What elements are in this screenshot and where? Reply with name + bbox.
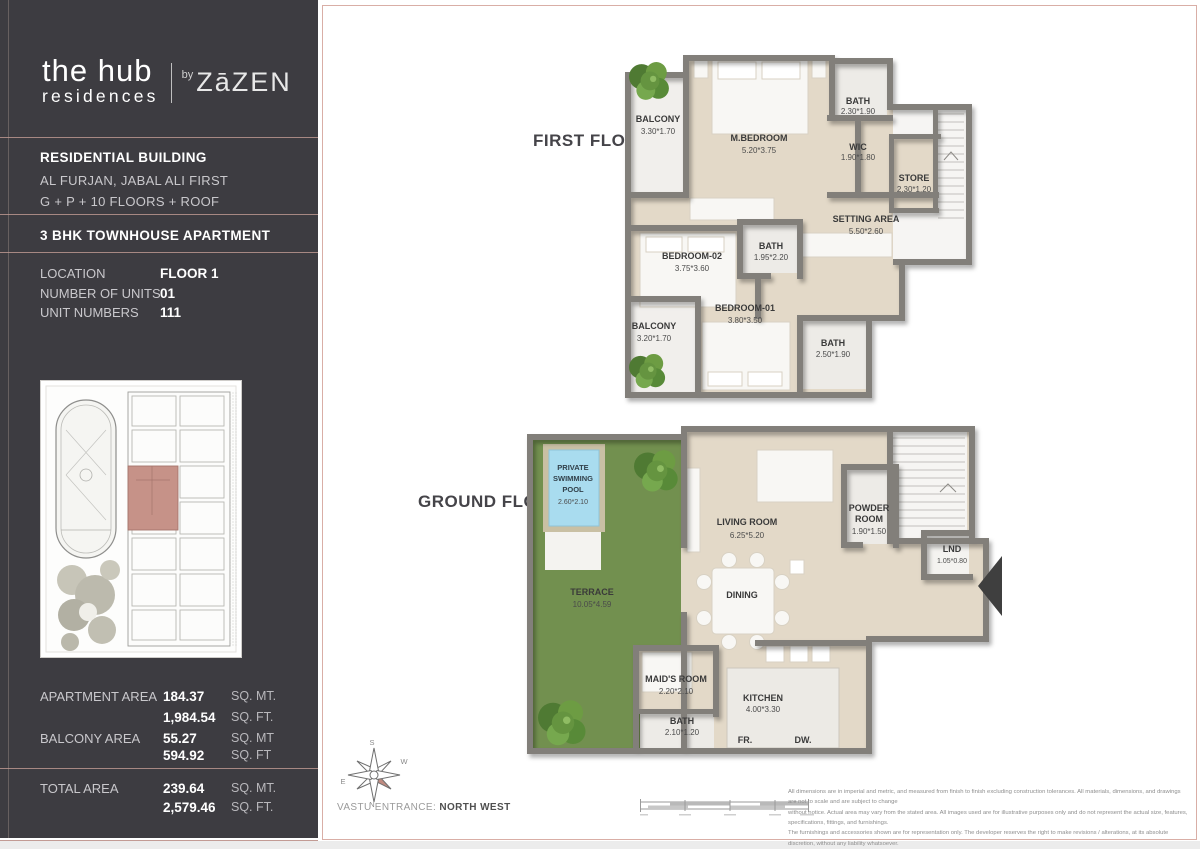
room-dims: 5.20*3.75 xyxy=(742,146,777,155)
room-label-lnd: LND xyxy=(943,544,962,554)
room-dims: 10.05*4.59 xyxy=(573,600,612,609)
building-location: AL FURJAN, JABAL ALI FIRST xyxy=(40,173,228,188)
room-dims: 1.95*2.20 xyxy=(754,253,789,262)
room-label-pool: POOL xyxy=(562,485,584,494)
room-label-pool: PRIVATE xyxy=(557,463,588,472)
detail-label: NUMBER OF UNITS xyxy=(40,286,161,301)
label-fridge: FR. xyxy=(738,735,753,745)
keyplan-courtyard xyxy=(56,400,116,558)
room-label-powder-room: ROOM xyxy=(855,514,883,524)
room-dims: 3.80*3.50 xyxy=(728,316,763,325)
divider xyxy=(0,214,318,215)
compass-rose-icon: S W E N xyxy=(338,736,410,808)
area-unit: SQ. MT. xyxy=(231,689,276,703)
room-label-balcony-bottom: BALCONY xyxy=(632,321,677,331)
room-dims: 6.25*5.20 xyxy=(730,531,765,540)
total-unit: SQ. MT. xyxy=(231,781,276,795)
disclaimer-line: All dimensions are in imperial and metri… xyxy=(788,787,1190,808)
area-unit: SQ. FT xyxy=(231,748,271,762)
room-dims: 2.20*2.10 xyxy=(659,687,694,696)
disclaimer-text: All dimensions are in imperial and metri… xyxy=(788,787,1190,849)
room-label-wic: WIC xyxy=(849,142,867,152)
detail-row: LOCATIONFLOOR 1 xyxy=(40,266,106,281)
area-value: 1,984.54 xyxy=(163,710,216,725)
room-label-kitchen: KITCHEN xyxy=(743,693,783,703)
room-dims: 2.30*1.90 xyxy=(841,107,876,116)
room-label-bedroom-02: BEDROOM-02 xyxy=(662,251,722,261)
room-label-bedroom-01: BEDROOM-01 xyxy=(715,303,775,313)
room-dims: 2.30*1.20 xyxy=(897,185,932,194)
label-dishwasher: DW. xyxy=(795,735,812,745)
total-value: 239.64 xyxy=(163,781,204,796)
compass-w: W xyxy=(400,757,408,766)
vastu-entrance: VASTU ENTRANCE: NORTH WEST xyxy=(337,802,511,813)
detail-row: NUMBER OF UNITS01 xyxy=(40,286,161,301)
room-dims: 4.00*3.30 xyxy=(746,705,781,714)
first-floor-plan: BALCONY 3.30*1.70 M.BEDROOM 5.20*3.75 BA… xyxy=(525,40,1005,410)
area-label: APARTMENT AREA xyxy=(40,689,157,704)
sidebar: the hub residences by ZāZEN RESIDENTIAL … xyxy=(0,0,318,838)
room-dims: 3.30*1.70 xyxy=(641,127,676,136)
detail-label: UNIT NUMBERS xyxy=(40,305,139,320)
room-label-living-room: LIVING ROOM xyxy=(717,517,778,527)
total-label: TOTAL AREA xyxy=(40,781,119,796)
developer-logo: ZāZEN xyxy=(196,67,292,98)
room-label-dining: DINING xyxy=(726,590,758,600)
area-label: BALCONY AREA xyxy=(40,731,140,746)
room-label-terrace: TERRACE xyxy=(570,587,614,597)
area-value: 184.37 xyxy=(163,689,204,704)
brand-by: by xyxy=(182,69,194,81)
building-floors: G + P + 10 FLOORS + ROOF xyxy=(40,194,219,209)
room-dims: 1.90*1.80 xyxy=(841,153,876,162)
sidebar-inset-line xyxy=(8,0,9,838)
room-dims: 2.10*1.20 xyxy=(665,728,700,737)
brand-name-bottom: residences xyxy=(42,86,159,107)
detail-row: UNIT NUMBERS111 xyxy=(40,305,139,320)
room-label-bath: BATH xyxy=(670,716,694,726)
room-dims: 5.50*2.60 xyxy=(849,227,884,236)
divider xyxy=(0,137,318,138)
total-row: TOTAL AREA239.64SQ. MT. xyxy=(40,781,290,796)
vastu-label: VASTU ENTRANCE: xyxy=(337,802,436,813)
disclaimer-line: The furnishings and accessories shown ar… xyxy=(788,828,1190,849)
room-label-setting-area: SETTING AREA xyxy=(833,214,900,224)
room-dims: 3.75*3.60 xyxy=(675,264,710,273)
detail-value: 01 xyxy=(160,286,175,301)
room-dims: 1.90*1.50 xyxy=(852,527,887,536)
room-dims: 1.05*0.80 xyxy=(937,558,967,565)
brand-name-top: the hub xyxy=(42,58,159,84)
key-plan-thumbnail xyxy=(40,380,242,658)
room-label-bath-top: BATH xyxy=(846,96,870,106)
area-unit: SQ. MT xyxy=(231,731,274,745)
divider xyxy=(0,252,318,253)
area-row: APARTMENT AREA184.37SQ. MT. xyxy=(40,689,290,704)
room-dims: 2.50*1.90 xyxy=(816,350,851,359)
total-unit: SQ. FT. xyxy=(231,800,273,814)
room-label-bath-mid: BATH xyxy=(759,241,783,251)
building-title: RESIDENTIAL BUILDING xyxy=(40,150,207,165)
room-label-store: STORE xyxy=(899,173,930,183)
vastu-value: NORTH WEST xyxy=(439,802,510,813)
room-label-powder-room: POWDER xyxy=(849,503,890,513)
keyplan-hatch xyxy=(230,392,238,646)
compass-s: S xyxy=(369,738,374,747)
room-dims: 2.60*2.10 xyxy=(558,499,588,506)
unit-type: 3 BHK TOWNHOUSE APARTMENT xyxy=(40,228,270,243)
ground-floor-plan: PRIVATE SWIMMING POOL 2.60*2.10 TERRACE … xyxy=(515,418,1015,763)
compass-e: E xyxy=(340,777,345,786)
detail-label: LOCATION xyxy=(40,266,106,281)
room-label-bath-bottom: BATH xyxy=(821,338,845,348)
room-label-master-bedroom: M.BEDROOM xyxy=(731,133,788,143)
brand-logo: the hub residences by ZāZEN xyxy=(42,58,292,107)
area-value: 55.27 xyxy=(163,731,197,746)
total-value: 2,579.46 xyxy=(163,800,216,815)
detail-value: 111 xyxy=(160,305,181,320)
area-unit: SQ. FT. xyxy=(231,710,273,724)
divider xyxy=(0,768,318,769)
area-value: 594.92 xyxy=(163,748,204,763)
area-row: BALCONY AREA55.27SQ. MT xyxy=(40,731,290,746)
room-label-balcony-top: BALCONY xyxy=(636,114,681,124)
logo-divider xyxy=(171,63,172,103)
room-label-pool: SWIMMING xyxy=(553,474,593,483)
room-label-maids-room: MAID'S ROOM xyxy=(645,674,707,684)
detail-value: FLOOR 1 xyxy=(160,266,219,281)
disclaimer-line: without notice. Actual area may vary fro… xyxy=(788,808,1190,829)
keyplan-unit-highlight xyxy=(128,466,178,530)
room-dims: 3.20*1.70 xyxy=(637,334,672,343)
